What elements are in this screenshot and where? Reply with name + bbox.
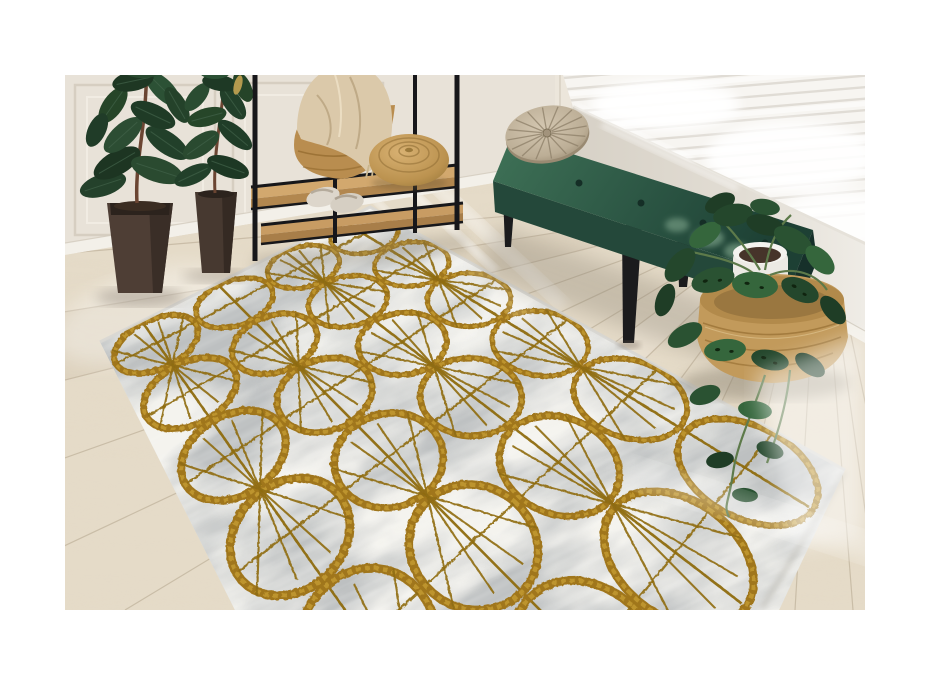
plant-pot-left [107, 201, 173, 293]
room-photo [65, 75, 865, 610]
product-photo-page [0, 0, 928, 686]
seagrass-pouf [369, 134, 449, 190]
plant-pot-right [195, 190, 237, 273]
scene-canvas [65, 75, 865, 610]
